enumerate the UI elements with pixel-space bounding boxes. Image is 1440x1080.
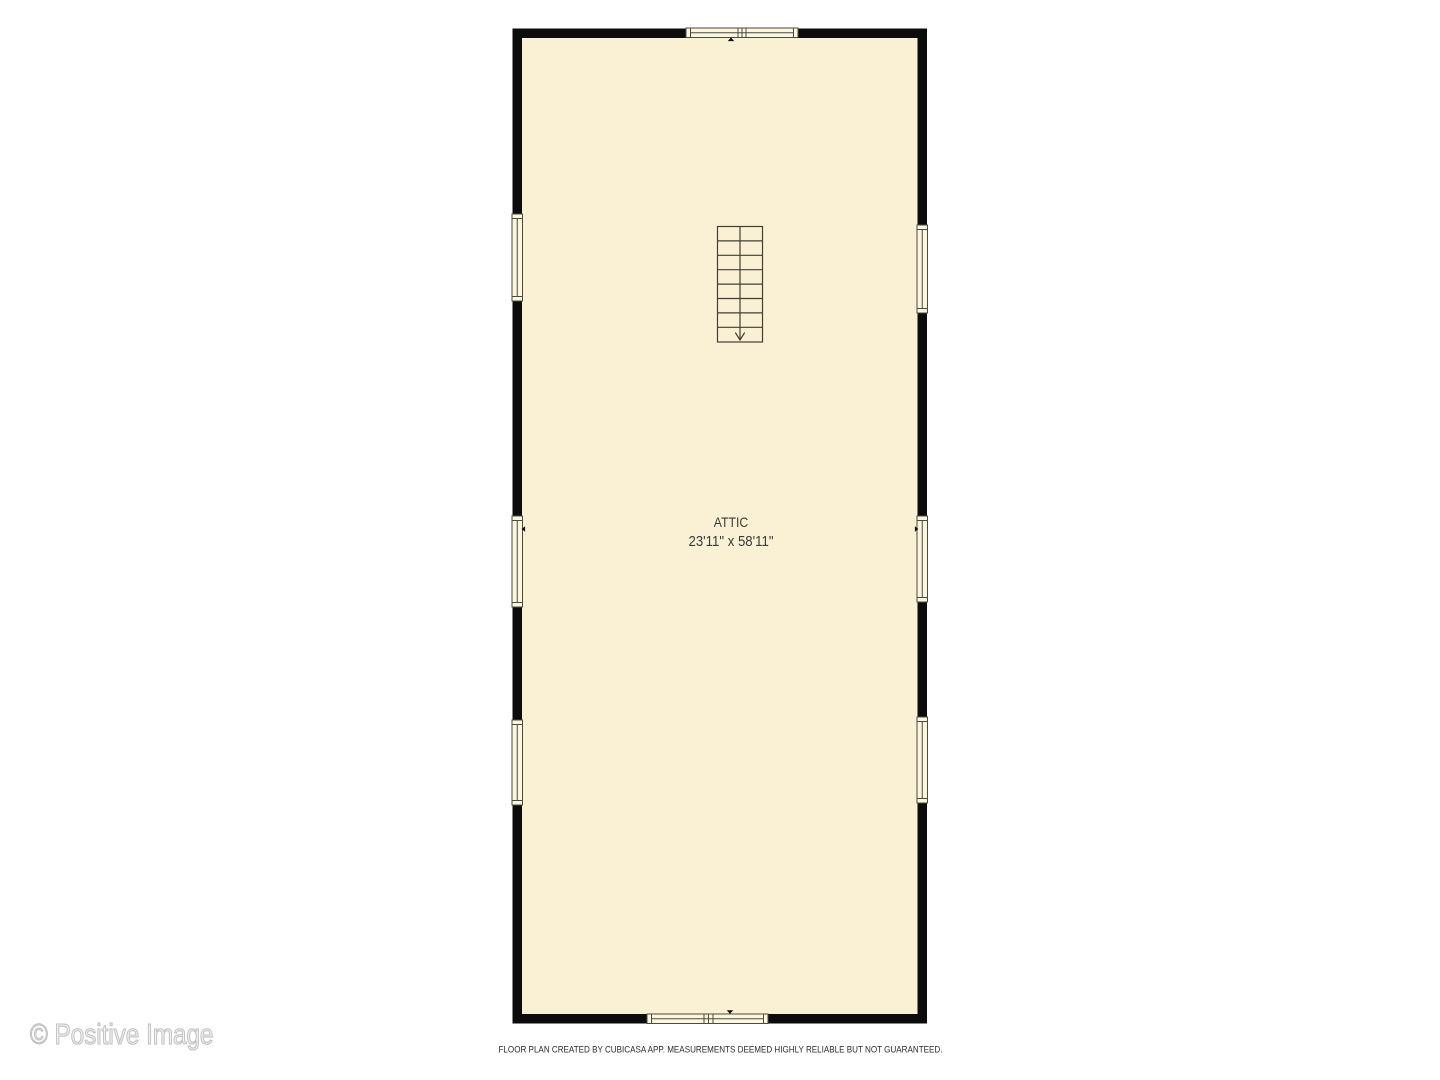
svg-text:ATTIC: ATTIC: [714, 515, 749, 530]
svg-text:FLOOR PLAN CREATED BY CUBICASA: FLOOR PLAN CREATED BY CUBICASA APP. MEAS…: [499, 1045, 943, 1055]
svg-text:23'11" x 58'11": 23'11" x 58'11": [689, 533, 774, 550]
